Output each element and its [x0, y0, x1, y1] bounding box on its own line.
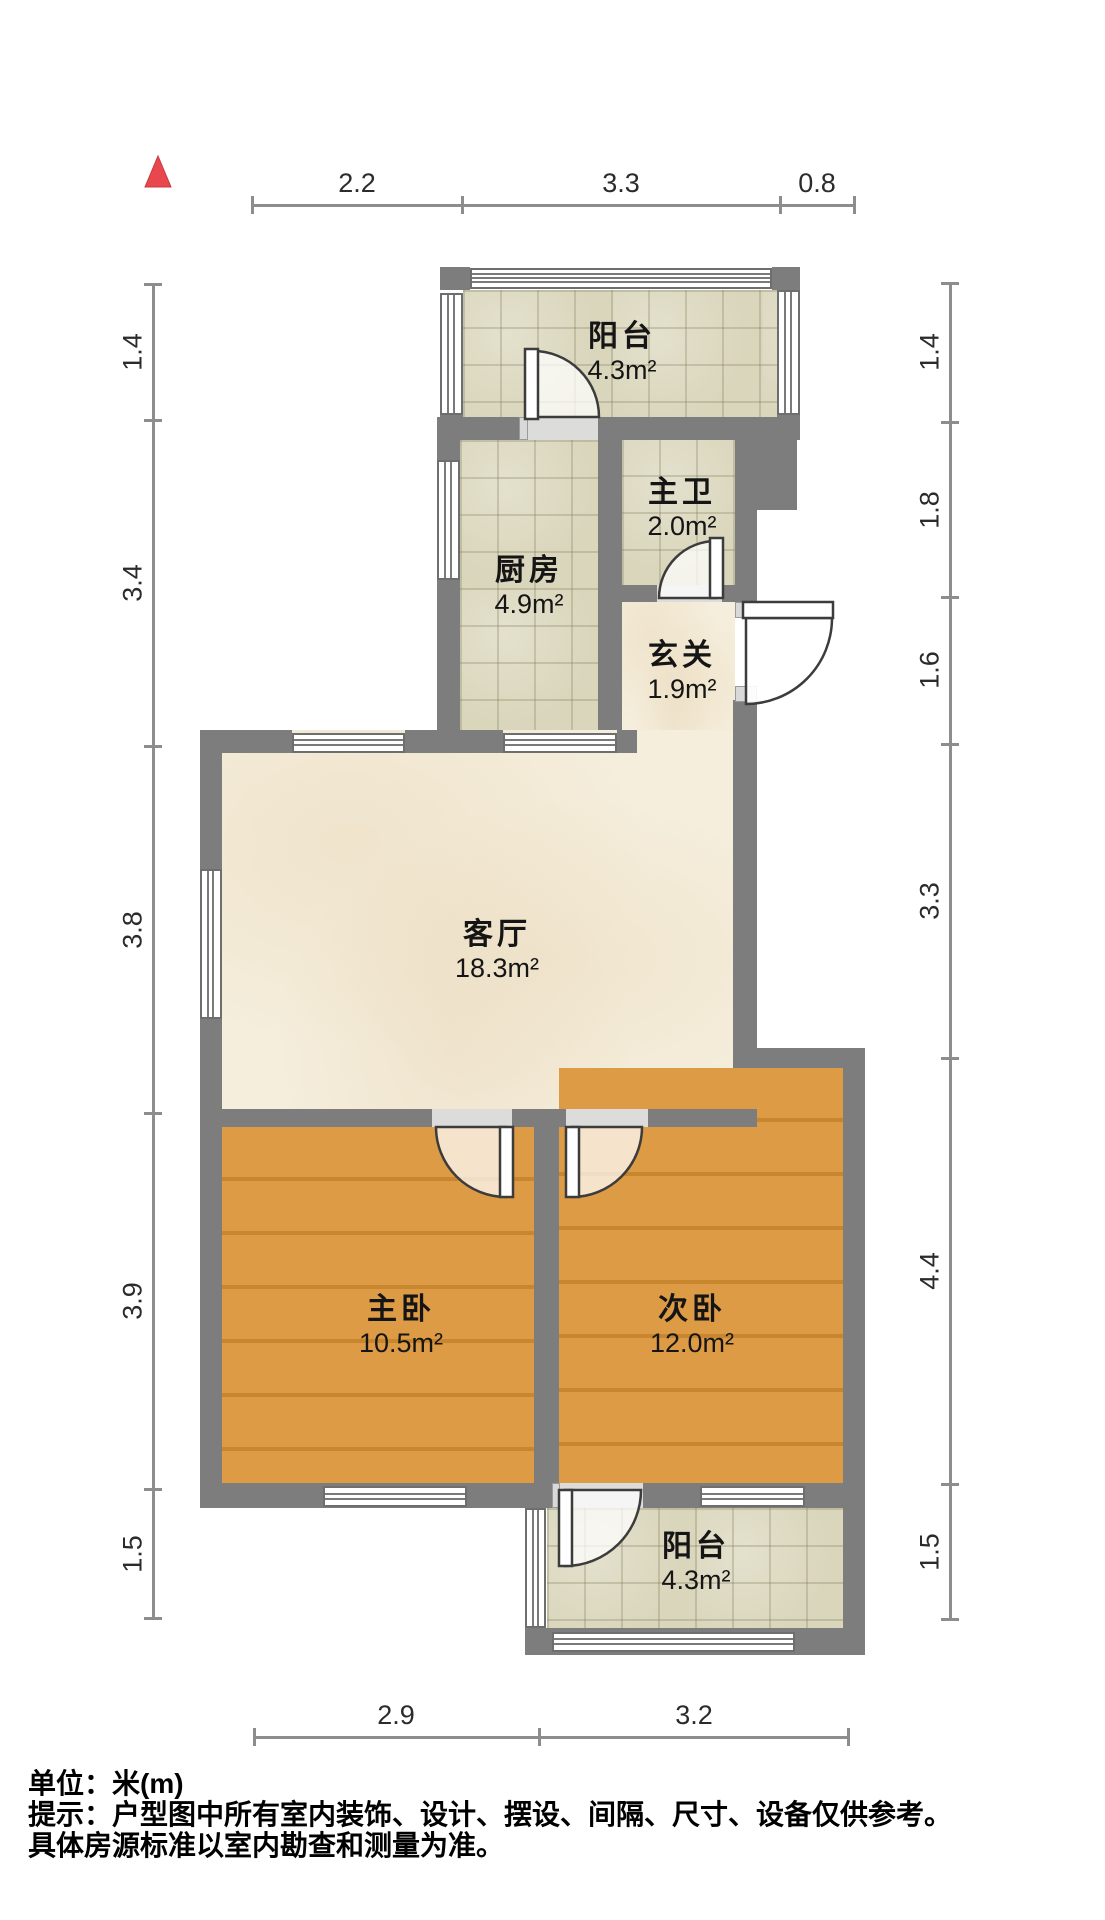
dim-label: 1.4: [915, 333, 946, 371]
window: [525, 1508, 546, 1628]
wall: [733, 700, 757, 1068]
wall: [512, 1109, 566, 1127]
dim-label: 1.4: [118, 333, 149, 371]
room-name: 阳台: [522, 320, 722, 354]
wall: [525, 1490, 547, 1508]
wall: [200, 1109, 432, 1127]
room-label-living-room: 客厅 18.3m²: [397, 918, 597, 985]
room-area: 2.0m²: [582, 510, 782, 543]
room-area: 12.0m²: [592, 1327, 792, 1360]
second-bedroom-floor: [559, 1068, 843, 1483]
dim-label: 0.8: [772, 168, 862, 199]
dim-label: 2.9: [351, 1700, 441, 1731]
window: [503, 733, 617, 753]
dim-label: 3.4: [118, 564, 149, 602]
dim-label: 1.6: [915, 651, 946, 689]
room-name: 主卫: [582, 476, 782, 510]
door-sill: [432, 1109, 512, 1127]
footer-notes: 单位：米(m) 提示：户型图中所有室内装饰、设计、摆设、间隔、尺寸、设备仅供参考…: [28, 1768, 952, 1861]
room-name: 玄关: [582, 639, 782, 673]
door-frame: [552, 1483, 560, 1508]
room-name: 客厅: [397, 918, 597, 952]
room-name: 主卧: [301, 1293, 501, 1327]
room-name: 次卧: [592, 1293, 792, 1327]
dim-label: 1.8: [915, 491, 946, 529]
door-sill: [566, 1109, 648, 1127]
wall: [200, 1019, 222, 1508]
room-label-balcony-bottom: 阳台 4.3m²: [596, 1530, 796, 1597]
room-area: 10.5m²: [301, 1327, 501, 1360]
dim-label: 4.4: [915, 1252, 946, 1290]
room-area: 4.3m²: [522, 354, 722, 387]
room-name: 阳台: [596, 1530, 796, 1564]
door-sill: [527, 417, 600, 440]
window: [292, 733, 405, 753]
wall: [843, 1068, 865, 1655]
wall: [405, 730, 503, 753]
window: [440, 293, 463, 415]
dim-label: 3.3: [576, 168, 666, 199]
unit-note: 单位：米(m): [28, 1768, 952, 1799]
room-label-master-bath: 主卫 2.0m²: [582, 476, 782, 543]
wall: [648, 1109, 757, 1127]
dim-label: 1.5: [118, 1535, 149, 1573]
room-name: 厨房: [429, 554, 629, 588]
door-frame: [519, 417, 528, 440]
wall: [437, 417, 527, 440]
dim-label: 3.2: [649, 1700, 739, 1731]
floorplan-canvas: 阳台 4.3m² 厨房 4.9m² 主卫 2.0m² 玄关 1.9m² 客厅 1…: [0, 0, 1105, 1920]
dim-label: 3.8: [118, 911, 149, 949]
wall: [437, 440, 460, 460]
wall: [440, 267, 470, 290]
window: [470, 268, 772, 289]
wall: [733, 1048, 865, 1068]
room-area: 1.9m²: [582, 673, 782, 706]
wall: [772, 267, 800, 290]
wall: [534, 1127, 559, 1483]
dim-label: 1.5: [915, 1533, 946, 1571]
wall: [200, 730, 222, 869]
dim-label: 3.9: [118, 1282, 149, 1320]
room-area: 4.9m²: [429, 588, 629, 621]
window: [777, 290, 800, 415]
room-area: 4.3m²: [596, 1564, 796, 1597]
door-sill: [657, 585, 722, 602]
room-label-foyer: 玄关 1.9m²: [582, 639, 782, 706]
door-frame: [735, 602, 757, 618]
wall: [617, 730, 637, 753]
window: [700, 1486, 805, 1507]
door-sill: [552, 1483, 643, 1508]
dim-label: 2.2: [312, 168, 402, 199]
disclaimer-line1: 提示：户型图中所有室内装饰、设计、摆设、间隔、尺寸、设备仅供参考。: [28, 1799, 952, 1830]
window: [552, 1632, 795, 1652]
room-area: 18.3m²: [397, 952, 597, 985]
room-label-balcony-top: 阳台 4.3m²: [522, 320, 722, 387]
room-label-kitchen: 厨房 4.9m²: [429, 554, 629, 621]
window: [200, 869, 222, 1019]
dim-label: 3.3: [915, 882, 946, 920]
room-label-second-bedroom: 次卧 12.0m²: [592, 1293, 792, 1360]
north-arrow-icon: [143, 155, 173, 189]
disclaimer-line2: 具体房源标准以室内勘查和测量为准。: [28, 1830, 952, 1861]
window: [323, 1486, 467, 1507]
room-label-master-bedroom: 主卧 10.5m²: [301, 1293, 501, 1360]
